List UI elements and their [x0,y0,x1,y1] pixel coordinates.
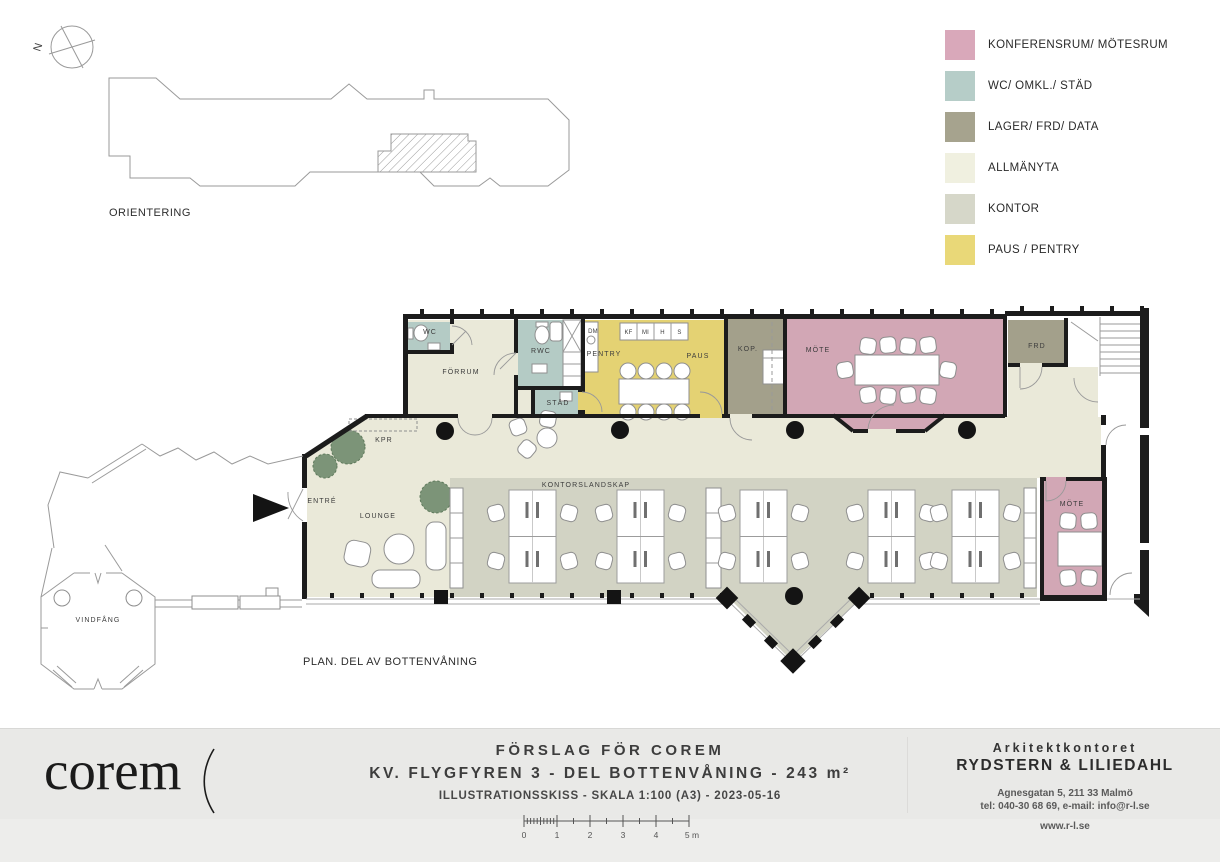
compass-icon: N [31,26,95,68]
label-kf: KF [624,330,632,336]
orientation-highlight-area [378,134,476,172]
architect-address: Agnesgatan 5, 211 33 Malmö [925,788,1205,799]
scale-label-1: 1 [555,830,560,840]
architect-block: Arkitektkontoret RYDSTERN & LILIEDAHL Ag… [925,741,1205,832]
architect-contact: tel: 040-30 68 69, e-mail: info@r-l.se [925,801,1205,812]
scale-label-5: 5 m [685,830,699,840]
entrance-arrow-icon [253,494,289,522]
orientation-label: ORIENTERING [109,207,191,219]
scale-label-3: 3 [621,830,626,840]
room-label-kpr: KPR [375,437,393,444]
architect-office-label: Arkitektkontoret [925,741,1205,755]
title-line-2: KV. FLYGFYREN 3 - DEL BOTTENVÅNING - 243… [320,765,900,783]
room-label-entre: ENTRÉ [307,496,336,505]
title-line-1: FÖRSLAG FÖR COREM [320,742,900,759]
legend: KONFERENSRUM/ MÖTESRUM WC/ OMKL./ STÄD L… [945,30,1168,276]
legend-label-paus: PAUS / PENTRY [988,244,1080,256]
room-label-stad: STÄD [546,399,569,407]
label-h: H [660,330,665,336]
corem-logo: corem [44,739,181,802]
legend-swatch-konferensrum [945,30,975,60]
room-label-vindfang: VINDFÅNG [76,615,121,624]
title-block: corem FÖRSLAG FÖR COREM KV. FLYGFYREN 3 … [0,728,1220,862]
legend-label-allmanyta: ALLMÄNYTA [988,162,1059,174]
drawing-title: FÖRSLAG FÖR COREM KV. FLYGFYREN 3 - DEL … [320,742,900,802]
compass-north-label: N [31,42,45,53]
legend-label-kontor: KONTOR [988,203,1039,215]
footer-divider [907,737,908,813]
room-label-paus: PAUS [687,353,710,360]
room-label-wc: WC [423,329,437,336]
legend-item-lager: LAGER/ FRD/ DATA [945,112,1168,142]
architect-website: www.r-l.se [925,821,1205,832]
room-label-forrum: FÖRRUM [442,368,479,376]
legend-item-kontor: KONTOR [945,194,1168,224]
scale-label-0: 0 [522,830,527,840]
room-label-pentry: PENTRY [587,351,622,358]
label-mi: MI [642,330,649,336]
scale-label-2: 2 [588,830,593,840]
room-label-kontorslandskap: KONTORSLANDSKAP [542,482,630,489]
legend-item-konferensrum: KONFERENSRUM/ MÖTESRUM [945,30,1168,60]
room-label-mote: MÖTE [806,346,831,354]
legend-swatch-kontor [945,194,975,224]
room-label-frd: FRD [1028,343,1046,350]
label-dm: DM [588,329,598,335]
corem-logo-swoosh-icon [196,745,220,817]
legend-swatch-wc [945,71,975,101]
legend-label-konferensrum: KONFERENSRUM/ MÖTESRUM [988,39,1168,51]
legend-swatch-allmanyta [945,153,975,183]
legend-label-wc: WC/ OMKL./ STÄD [988,80,1092,92]
legend-item-paus: PAUS / PENTRY [945,235,1168,265]
title-line-3: ILLUSTRATIONSSKISS - SKALA 1:100 (A3) - … [320,790,900,802]
room-label-rwc: RWC [531,348,551,355]
scale-label-4: 4 [654,830,659,840]
legend-item-wc: WC/ OMKL./ STÄD [945,71,1168,101]
room-label-lounge: LOUNGE [360,513,396,520]
legend-label-lager: LAGER/ FRD/ DATA [988,121,1099,133]
plan-caption: PLAN. DEL AV BOTTENVÅNING [303,655,478,668]
scale-bar: 0 1 2 3 4 5 m [520,813,710,843]
exterior-structures [41,444,303,689]
legend-swatch-paus [945,235,975,265]
legend-swatch-lager [945,112,975,142]
room-label-kop: KOP. [738,346,758,353]
architect-name: RYDSTERN & LILIEDAHL [925,757,1205,775]
label-s: S [677,330,681,336]
room-label-mote-small: MÖTE [1060,500,1085,508]
orientation-plan: ORIENTERING [109,78,569,219]
legend-item-allmanyta: ALLMÄNYTA [945,153,1168,183]
